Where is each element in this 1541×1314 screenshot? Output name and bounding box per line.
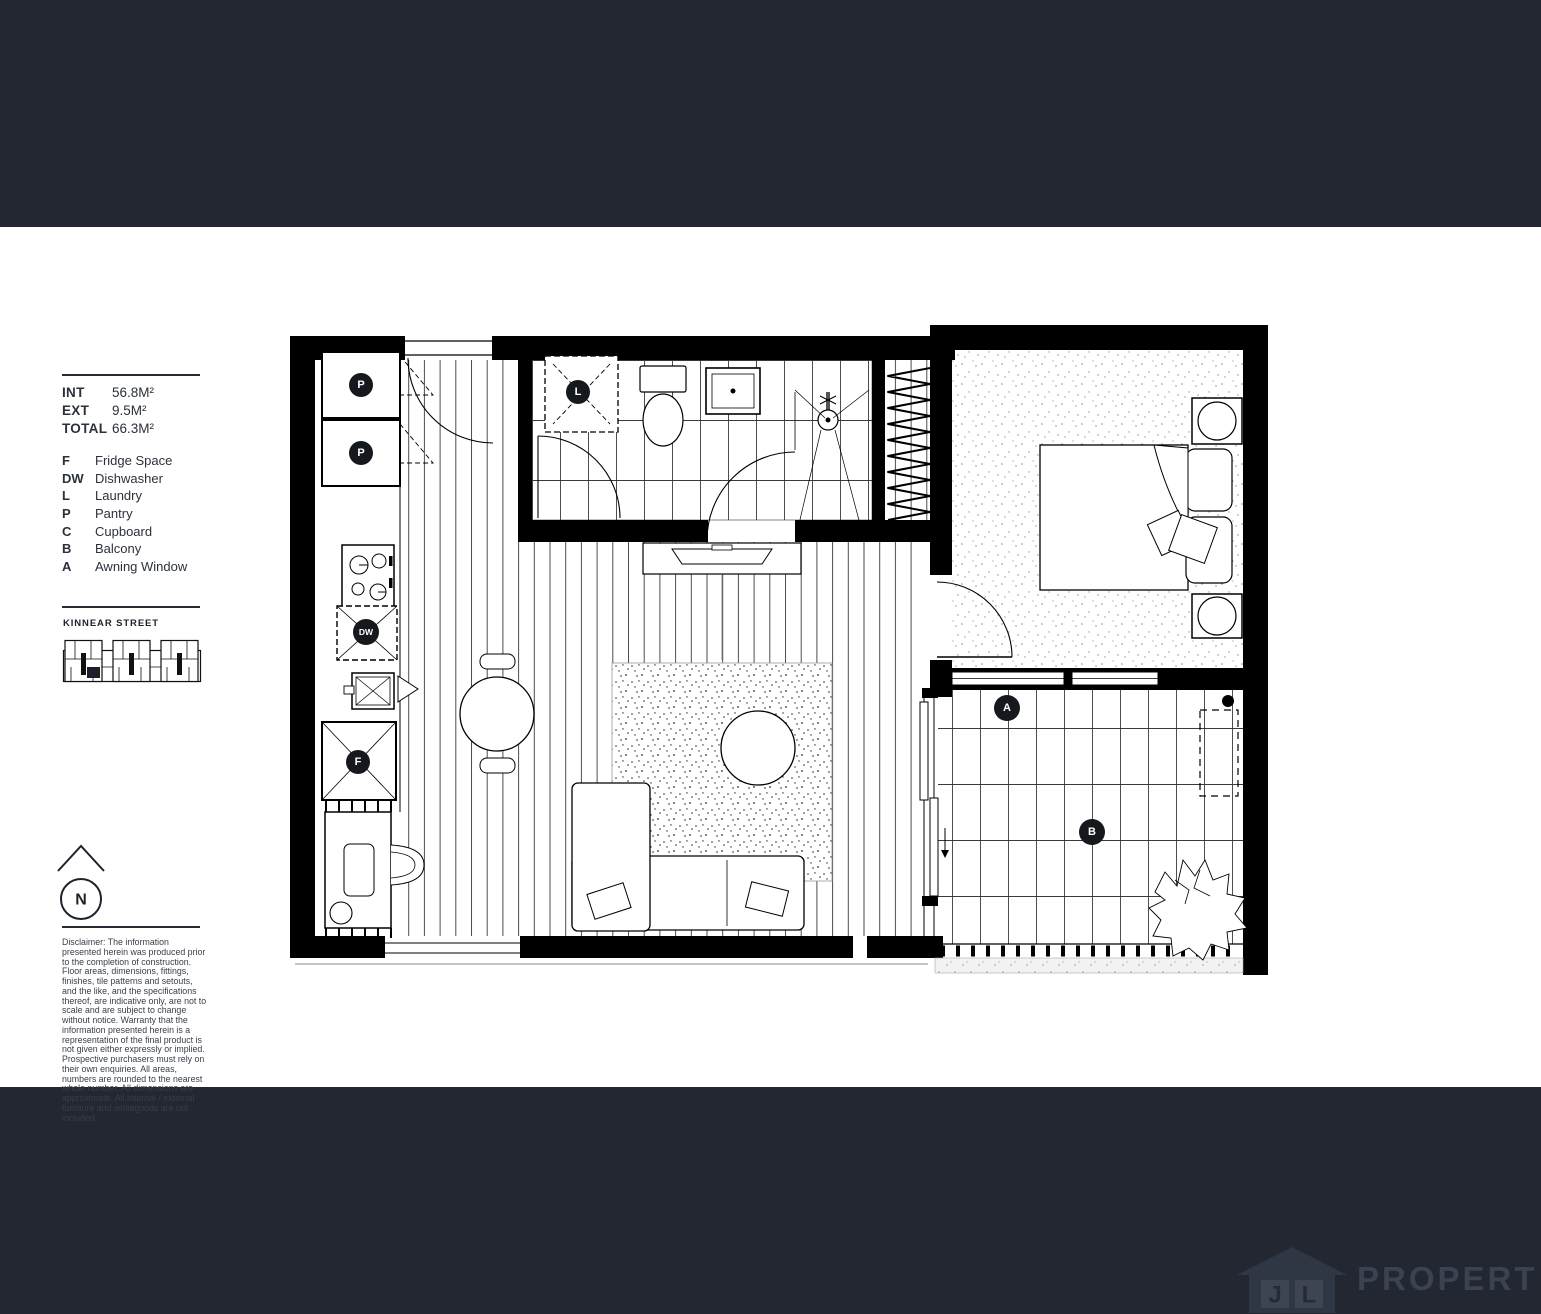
legend-laundry-label: Laundry	[95, 488, 142, 503]
tap-icon	[344, 686, 354, 694]
marker-fridge: F	[355, 756, 362, 768]
pillow-top	[1186, 449, 1232, 511]
legend-fridge: F Fridge Space	[62, 452, 187, 470]
toilet	[640, 366, 686, 392]
brand-wordmark: PROPERTY	[1357, 1260, 1535, 1297]
house-roof-icon	[1237, 1247, 1347, 1275]
marker-pantry-bottom: P	[357, 447, 364, 459]
marker-balcony: B	[1088, 826, 1096, 838]
brand-letter-j: J	[1268, 1282, 1281, 1309]
legend-balcony-label: Balcony	[95, 541, 141, 556]
divider-bottom	[62, 926, 200, 928]
plan-legend: F Fridge Space DW Dishwasher L Laundry P…	[62, 452, 187, 575]
legend-balcony-key: B	[62, 541, 95, 556]
area-ext-value: 9.5M²	[112, 403, 147, 418]
divider-top	[62, 374, 200, 376]
legend-laundry: L Laundry	[62, 487, 187, 505]
hall-floorboards	[400, 360, 518, 542]
legend-awning: A Awning Window	[62, 558, 187, 576]
area-summary: INT 56.8M² EXT 9.5M² TOTAL 66.3M²	[62, 383, 154, 437]
marker-laundry: L	[575, 386, 582, 398]
legend-awning-label: Awning Window	[95, 559, 187, 574]
brand-logo-drawing: J L PROPERTY	[1235, 1243, 1535, 1313]
site-map-highlighted-unit	[87, 667, 100, 678]
north-compass-drawing: N	[55, 840, 107, 932]
cooktop	[342, 545, 394, 608]
entry-opening	[405, 336, 492, 360]
legend-cupboard-label: Cupboard	[95, 524, 152, 539]
dining-table	[460, 677, 534, 751]
coffee-table	[721, 711, 795, 785]
legend-fridge-key: F	[62, 453, 95, 468]
legend-dishwasher: DW Dishwasher	[62, 470, 187, 488]
dining-chair-bottom	[480, 758, 515, 773]
stool	[330, 902, 352, 924]
sliding-door	[920, 688, 938, 936]
area-int: INT 56.8M²	[62, 383, 154, 401]
legend-balcony: B Balcony	[62, 540, 187, 558]
north-compass: N	[55, 840, 107, 937]
area-ext: EXT 9.5M²	[62, 401, 154, 419]
legend-awning-key: A	[62, 559, 95, 574]
downpipe	[1222, 695, 1234, 707]
marker-dishwasher: DW	[359, 627, 374, 637]
area-int-value: 56.8M²	[112, 385, 154, 400]
marker-pantry-top: P	[357, 379, 364, 391]
area-total: TOTAL 66.3M²	[62, 419, 154, 437]
floor-plan: P P L DW F A B	[290, 323, 1270, 983]
floor-plan-drawing: P P L DW F A B	[290, 323, 1270, 978]
marker-awning-window: A	[1003, 702, 1011, 714]
tv	[672, 549, 772, 564]
legend-cupboard: C Cupboard	[62, 522, 187, 540]
lamp-bottom	[1198, 597, 1236, 635]
area-int-label: INT	[62, 385, 112, 400]
legend-dishwasher-key: DW	[62, 471, 95, 486]
legend-dishwasher-label: Dishwasher	[95, 471, 163, 486]
compass-n-label: N	[75, 892, 87, 909]
floorplan-page: INT 56.8M² EXT 9.5M² TOTAL 66.3M² F Frid…	[0, 0, 1541, 1314]
legend-cupboard-key: C	[62, 524, 95, 539]
site-map-drawing	[62, 637, 202, 691]
area-total-label: TOTAL	[62, 421, 112, 436]
legend-fridge-label: Fridge Space	[95, 453, 172, 468]
brand-logo: J L PROPERTY	[1235, 1243, 1535, 1314]
brand-letter-l: L	[1302, 1282, 1317, 1309]
site-map	[62, 637, 202, 696]
lamp-top	[1198, 402, 1236, 440]
dining-chair-top	[480, 654, 515, 669]
legend-pantry: P Pantry	[62, 505, 187, 523]
header-band	[0, 0, 1541, 227]
legend-pantry-label: Pantry	[95, 506, 133, 521]
legend-laundry-key: L	[62, 488, 95, 503]
divider-middle	[62, 606, 200, 608]
area-ext-label: EXT	[62, 403, 112, 418]
disclaimer-text: Disclaimer: The information presented he…	[62, 938, 208, 1123]
area-total-value: 66.3M²	[112, 421, 154, 436]
street-label: KINNEAR STREET	[63, 618, 159, 629]
north-arrow-icon	[58, 846, 104, 871]
legend-pantry-key: P	[62, 506, 95, 521]
